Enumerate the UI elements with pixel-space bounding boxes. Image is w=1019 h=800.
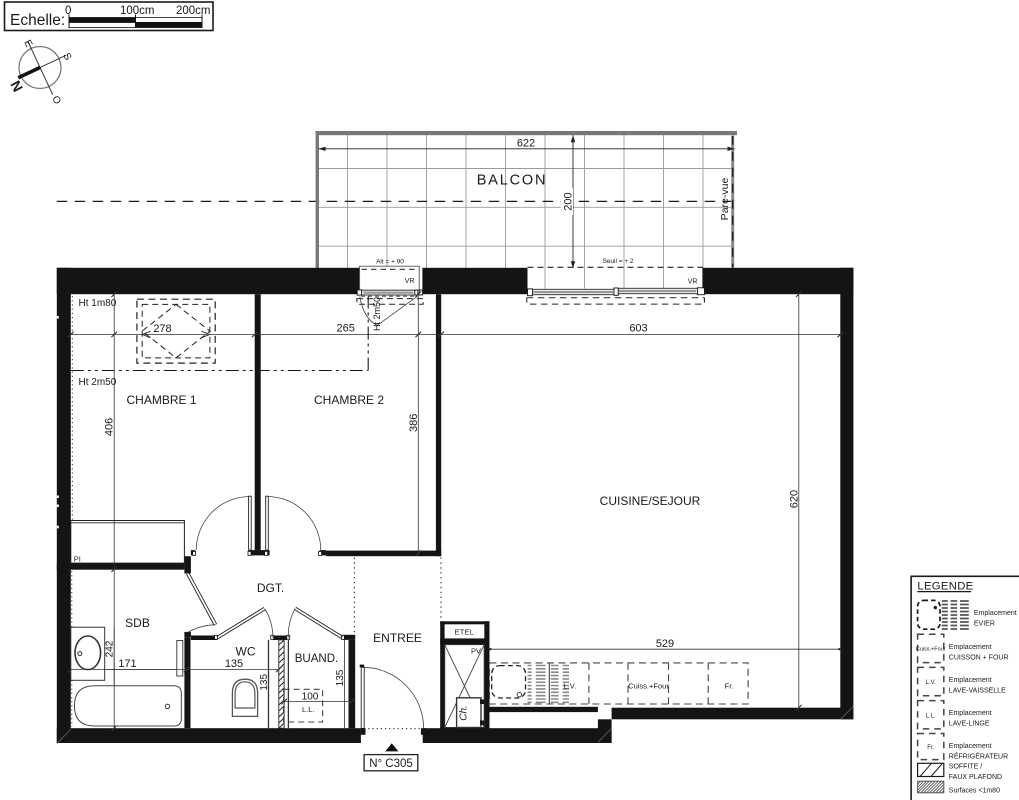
svg-text:FAUX PLAFOND: FAUX PLAFOND [949,774,1002,781]
svg-text:VR: VR [405,278,415,285]
svg-text:BALCON: BALCON [477,172,547,188]
svg-text:620: 620 [788,490,800,508]
svg-text:0: 0 [65,5,71,17]
svg-text:PV: PV [471,647,481,656]
svg-text:Alt = + 90: Alt = + 90 [376,259,404,266]
svg-text:529: 529 [656,638,674,650]
svg-text:Ht 2m50: Ht 2m50 [372,297,382,331]
svg-text:386: 386 [408,414,420,432]
svg-text:L.L.: L.L. [302,705,315,714]
svg-text:CHAMBRE 2: CHAMBRE 2 [314,393,384,407]
svg-text:Fr.: Fr. [725,682,734,691]
svg-text:200cm: 200cm [176,5,211,17]
svg-text:Pare-vue: Pare-vue [719,178,731,221]
svg-text:265: 265 [337,323,355,335]
svg-text:135: 135 [225,658,243,670]
svg-text:Surfaces <1m80: Surfaces <1m80 [949,788,1000,795]
svg-text:135: 135 [335,669,346,686]
svg-text:Echelle:: Echelle: [10,12,65,29]
svg-text:SOFFITE /: SOFFITE / [949,764,983,771]
svg-text:VR: VR [688,278,698,285]
svg-text:Ch.: Ch. [459,705,470,721]
svg-text:Emplacement: Emplacement [949,644,992,651]
svg-text:Emplacement: Emplacement [949,710,992,717]
svg-text:Emplacement: Emplacement [949,677,992,684]
svg-text:Cuiss.+Four: Cuiss.+Four [916,647,946,653]
svg-text:Ht 2m50: Ht 2m50 [79,377,117,388]
svg-text:N° C305: N° C305 [369,758,413,770]
svg-text:171: 171 [118,658,136,670]
svg-text:603: 603 [629,323,647,335]
svg-text:Emplacement: Emplacement [974,610,1017,617]
svg-text:CHAMBRE 1: CHAMBRE 1 [126,393,196,407]
svg-text:DGT.: DGT. [257,581,284,595]
svg-text:L.V.: L.V. [564,682,577,691]
svg-text:RÉFRIGÉRATEUR: RÉFRIGÉRATEUR [949,752,1008,761]
svg-text:L.L.: L.L. [926,713,936,719]
svg-text:Fr.: Fr. [927,745,934,751]
svg-text:278: 278 [153,323,171,335]
svg-text:LAVE-LINGE: LAVE-LINGE [949,720,990,727]
svg-text:135: 135 [259,674,270,691]
svg-text:100cm: 100cm [120,5,155,17]
svg-text:SDB: SDB [125,616,150,630]
svg-text:Seuil = + 2: Seuil = + 2 [602,258,633,265]
svg-text:200: 200 [563,192,575,210]
svg-text:L.V.: L.V. [926,680,936,686]
svg-text:BUAND.: BUAND. [295,653,338,665]
svg-text:PI: PI [74,555,81,564]
svg-text:CUISSON + FOUR: CUISSON + FOUR [949,654,1009,661]
svg-text:100: 100 [302,691,319,702]
svg-text:LEGENDE: LEGENDE [917,580,973,592]
svg-text:WC: WC [236,644,256,658]
svg-text:406: 406 [104,418,116,436]
svg-text:Cuiss.+Four: Cuiss.+Four [628,682,669,691]
svg-text:CUISINE/SEJOUR: CUISINE/SEJOUR [600,494,701,508]
svg-text:622: 622 [517,137,535,149]
svg-text:ENTREE: ENTREE [373,631,422,645]
svg-text:EVIER: EVIER [974,620,995,627]
svg-text:LAVE-VAISSELLE: LAVE-VAISSELLE [949,687,1006,694]
svg-text:ETEL: ETEL [455,628,475,637]
svg-text:Ht 1m80: Ht 1m80 [79,298,117,309]
svg-text:Emplacement: Emplacement [949,743,992,750]
